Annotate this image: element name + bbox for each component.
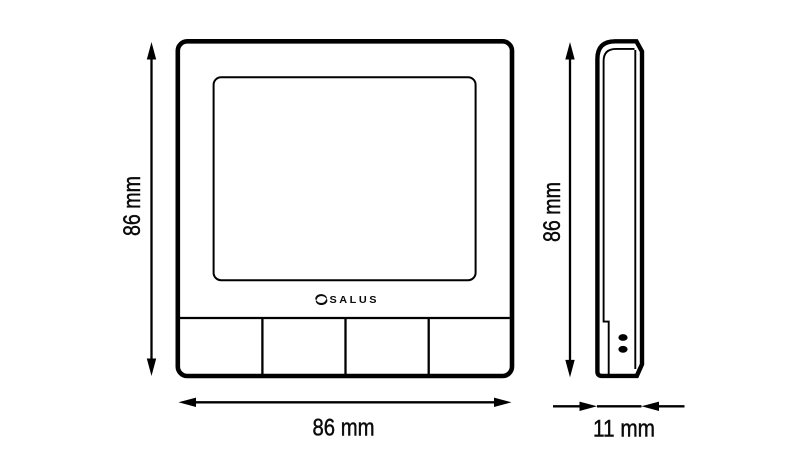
svg-text:SALUS: SALUS	[330, 295, 380, 306]
svg-text:86 mm: 86 mm	[313, 414, 375, 441]
svg-text:86 mm: 86 mm	[119, 176, 146, 236]
svg-text:86 mm: 86 mm	[539, 182, 566, 242]
svg-text:11 mm: 11 mm	[593, 416, 655, 443]
